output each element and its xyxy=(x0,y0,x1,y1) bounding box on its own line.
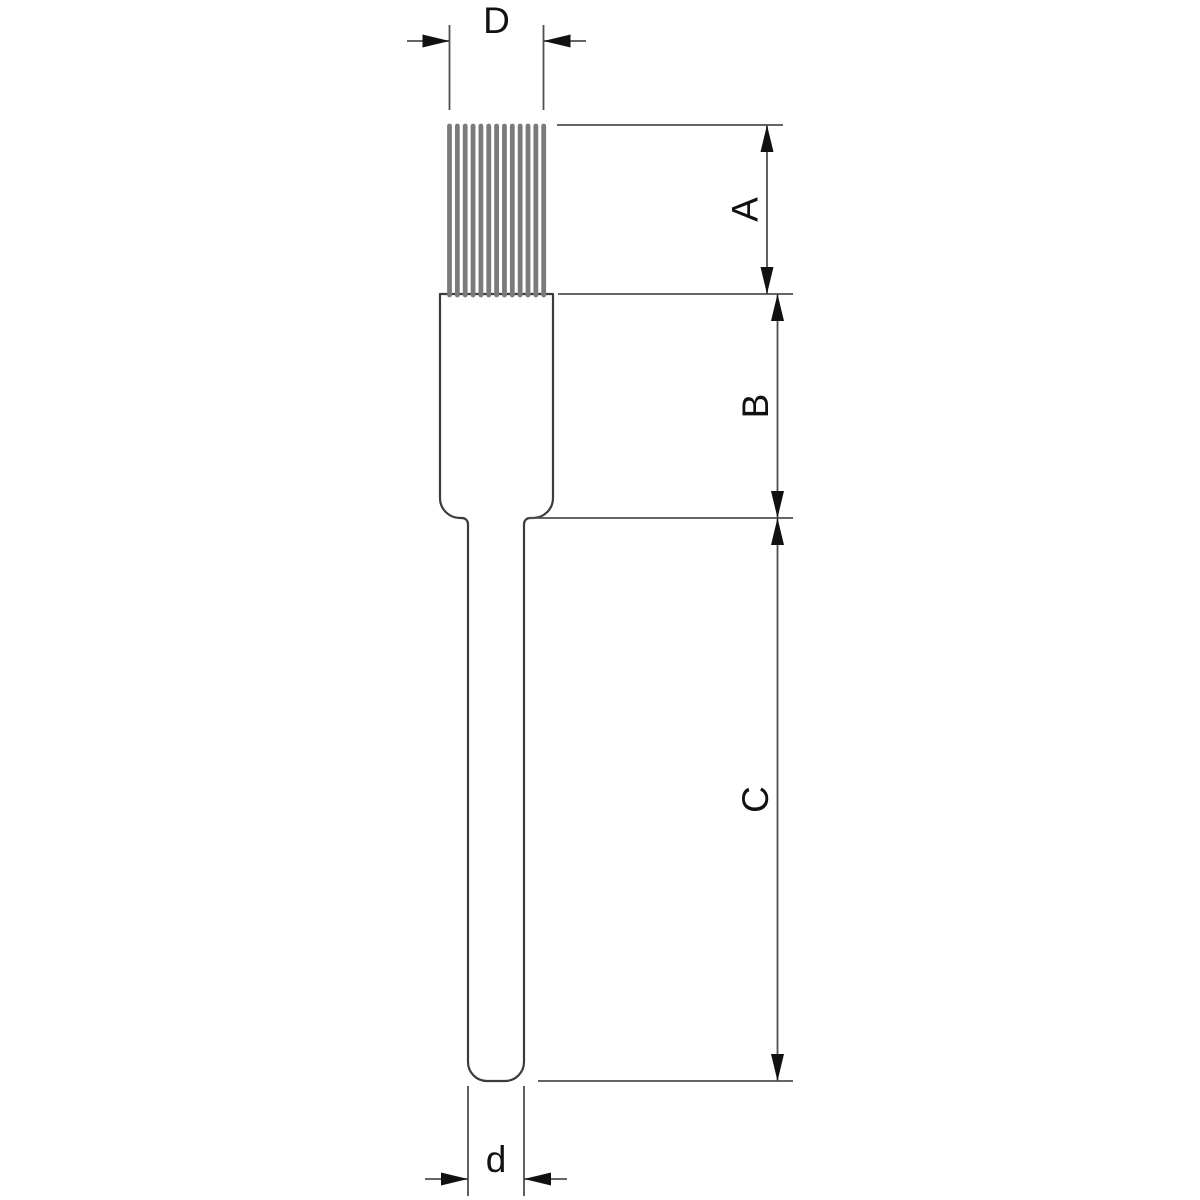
dimension-B: B xyxy=(528,294,793,518)
dim-C-arrow-top xyxy=(771,518,784,545)
dim-A-arrow-bottom xyxy=(761,267,774,294)
dim-D-arrow-right xyxy=(544,35,571,48)
dimension-D: D xyxy=(407,0,586,110)
dim-A-arrow-top xyxy=(761,125,774,152)
dimension-A: A xyxy=(557,125,793,294)
dim-B-arrow-top xyxy=(771,294,784,321)
brush-bristles xyxy=(450,126,544,295)
dim-A-label: A xyxy=(725,197,766,222)
technical-drawing: D A B C d xyxy=(0,0,1200,1200)
dim-d-arrow-right xyxy=(524,1173,551,1186)
dim-B-label: B xyxy=(735,394,776,419)
dim-d-label: d xyxy=(486,1139,507,1180)
tool-body-outline xyxy=(440,294,553,1081)
dimension-C: C xyxy=(538,518,793,1081)
dim-C-label: C xyxy=(735,786,776,813)
dim-D-label: D xyxy=(483,0,510,41)
dim-D-arrow-left xyxy=(423,35,450,48)
dimension-d: d xyxy=(425,1086,567,1196)
dim-B-arrow-bottom xyxy=(771,491,784,518)
dim-C-arrow-bottom xyxy=(771,1054,784,1081)
dim-d-arrow-left xyxy=(441,1173,468,1186)
